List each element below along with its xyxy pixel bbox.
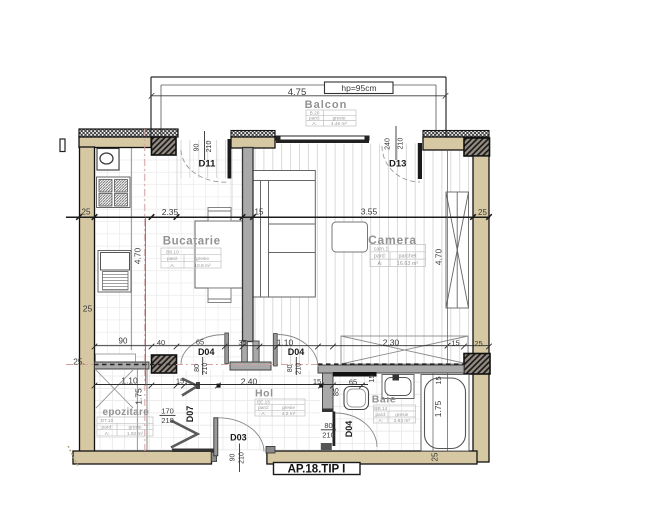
- svg-text:25: 25: [478, 208, 487, 217]
- svg-text:65: 65: [196, 338, 204, 347]
- svg-text:1.75: 1.75: [433, 400, 443, 417]
- svg-text:210: 210: [296, 363, 303, 375]
- svg-text:16.63 m²: 16.63 m²: [397, 261, 418, 267]
- svg-text:15: 15: [255, 208, 264, 217]
- svg-text:40: 40: [157, 338, 165, 347]
- svg-text:Hol: Hol: [255, 388, 274, 400]
- svg-text:B.20: B.20: [310, 110, 320, 116]
- svg-text:D13: D13: [389, 159, 406, 170]
- svg-text:pard:: pard:: [309, 116, 320, 122]
- svg-text:35: 35: [238, 338, 246, 347]
- svg-text:D11: D11: [199, 159, 217, 170]
- svg-text:210: 210: [161, 416, 174, 425]
- svg-text:90: 90: [230, 454, 237, 462]
- svg-text:1.92 m²: 1.92 m²: [127, 431, 144, 437]
- svg-text:4.46 m²: 4.46 m²: [331, 121, 348, 127]
- svg-text:85: 85: [332, 388, 341, 396]
- svg-text:hp=95cm: hp=95cm: [341, 83, 376, 93]
- svg-text:D04: D04: [288, 347, 305, 357]
- svg-text:gresie: gresie: [332, 116, 345, 122]
- svg-text:D04: D04: [198, 347, 215, 357]
- svg-text:210: 210: [206, 141, 213, 153]
- svg-text:15: 15: [451, 339, 459, 348]
- svg-text:1.75: 1.75: [134, 388, 144, 405]
- svg-text:1.10: 1.10: [277, 338, 294, 348]
- svg-text:2.40: 2.40: [241, 377, 258, 387]
- svg-text:A:: A:: [377, 261, 382, 267]
- svg-text:25: 25: [83, 304, 93, 314]
- svg-text:2.35: 2.35: [162, 207, 179, 217]
- svg-text:2.30: 2.30: [383, 338, 400, 348]
- svg-text:gresie: gresie: [395, 412, 408, 418]
- svg-text:210: 210: [202, 363, 209, 375]
- svg-text:80: 80: [287, 364, 294, 372]
- svg-text:parchet: parchet: [399, 254, 417, 260]
- svg-text:EE.15: EE.15: [257, 400, 270, 406]
- svg-text:Balcon: Balcon: [305, 99, 348, 111]
- svg-text:pard:: pard:: [258, 405, 269, 411]
- svg-text:80: 80: [194, 364, 201, 372]
- svg-text:gresie: gresie: [282, 405, 295, 411]
- svg-text:D03: D03: [230, 433, 247, 443]
- svg-text:25.: 25.: [73, 357, 85, 367]
- svg-text:210: 210: [398, 138, 405, 150]
- svg-text:170: 170: [161, 407, 174, 416]
- svg-text:3.55: 3.55: [361, 207, 378, 217]
- svg-text:pard:: pard:: [375, 412, 386, 418]
- svg-text:AP.18.TIP I: AP.18.TIP I: [288, 463, 346, 475]
- svg-text:15: 15: [434, 376, 443, 384]
- svg-text:A:: A:: [105, 431, 110, 437]
- svg-text:Baie: Baie: [372, 393, 397, 405]
- svg-text:1.10: 1.10: [121, 376, 138, 386]
- svg-text:A:: A:: [170, 263, 175, 269]
- svg-text:65: 65: [349, 378, 357, 387]
- svg-text:210: 210: [238, 452, 245, 464]
- svg-text:A:: A:: [312, 121, 317, 127]
- svg-text:4.2 m²: 4.2 m²: [282, 411, 296, 417]
- svg-text:4.75: 4.75: [288, 87, 307, 98]
- svg-text:240: 240: [385, 138, 392, 150]
- svg-text:epozitare: epozitare: [102, 407, 149, 418]
- svg-text:gresie: gresie: [196, 256, 209, 262]
- svg-text:A:: A:: [261, 411, 266, 417]
- svg-text:DT.10: DT.10: [101, 418, 114, 424]
- svg-text:15: 15: [367, 374, 376, 382]
- svg-text:B8.10: B8.10: [166, 250, 179, 256]
- svg-text:90: 90: [194, 144, 201, 152]
- svg-text:3.93 m²: 3.93 m²: [394, 418, 411, 424]
- svg-text:D04: D04: [344, 421, 354, 438]
- svg-text:D07: D07: [185, 406, 195, 423]
- svg-text:BB.14: BB.14: [374, 406, 387, 412]
- svg-text:90: 90: [119, 337, 128, 346]
- svg-text:cam.1: cam.1: [374, 246, 389, 252]
- svg-text:4.70: 4.70: [434, 248, 444, 265]
- svg-text:25: 25: [431, 452, 440, 461]
- svg-text:pard:: pard:: [374, 254, 386, 260]
- svg-text:pard:: pard:: [167, 256, 178, 262]
- svg-text:210: 210: [322, 431, 335, 440]
- svg-text:80: 80: [324, 421, 332, 430]
- svg-text:25: 25: [474, 339, 482, 348]
- svg-text:10.9 m²: 10.9 m²: [194, 263, 211, 269]
- svg-text:A:: A:: [379, 418, 384, 424]
- svg-text:4.70: 4.70: [133, 247, 143, 264]
- svg-text:15: 15: [176, 377, 184, 386]
- svg-text:pard:: pard:: [102, 425, 113, 431]
- svg-text:25: 25: [82, 208, 91, 217]
- svg-text:Bucatarie: Bucatarie: [163, 236, 221, 248]
- svg-text:gresie: gresie: [128, 425, 141, 431]
